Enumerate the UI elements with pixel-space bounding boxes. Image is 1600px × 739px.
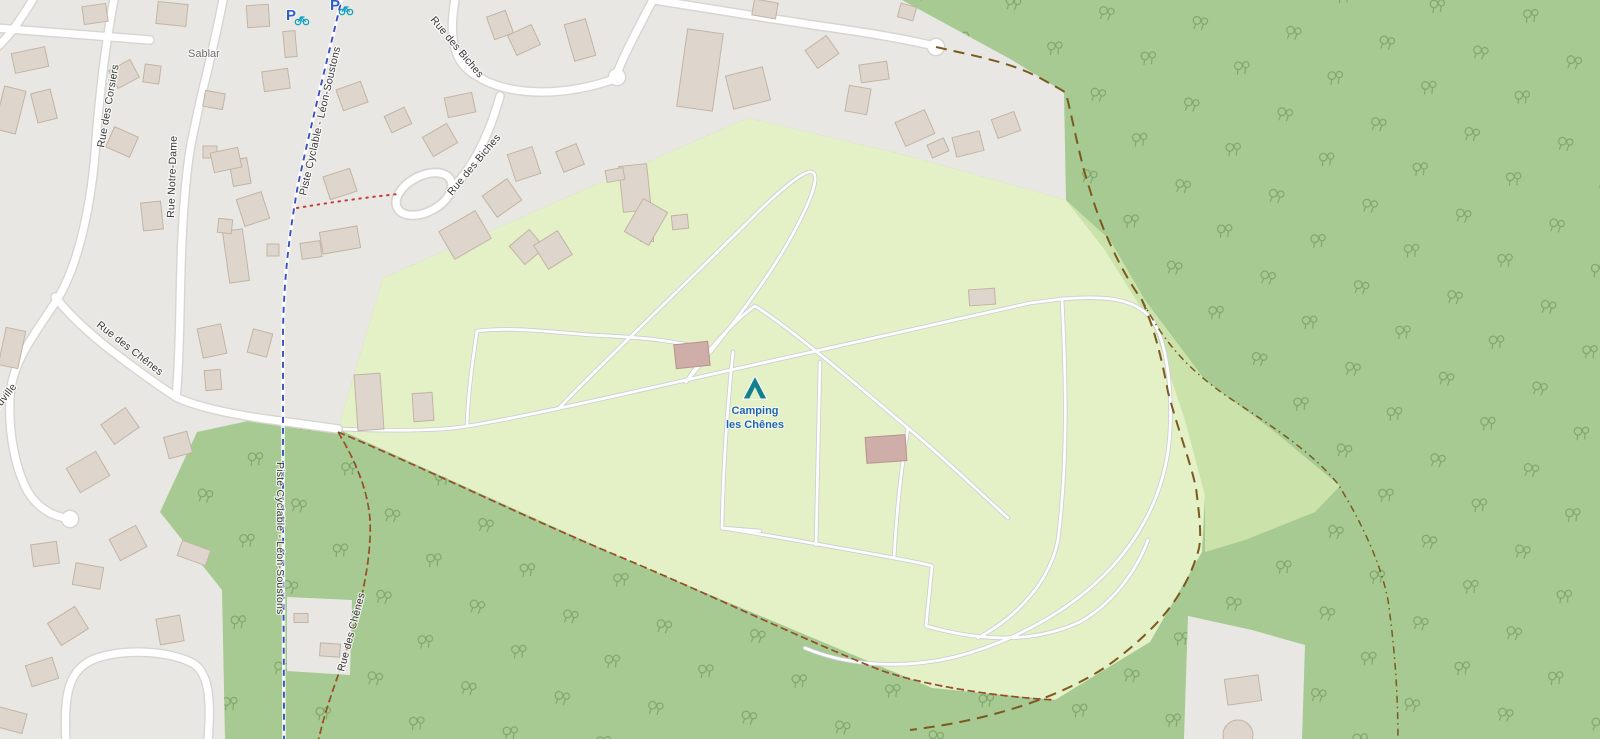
building [267,244,279,256]
building [300,241,322,260]
building [865,435,907,464]
building [320,643,341,657]
cycleway-label-south: Piste Cyclable - Léon-Soustons [274,462,286,615]
place-label-sablar: Sablar [188,48,220,60]
building [141,201,164,231]
svg-text:P: P [330,0,340,14]
building [283,31,297,58]
building [156,615,184,645]
osm-map[interactable]: P P Rue des Corsiers Rue Notre-Dame Sabl… [0,0,1600,739]
building [82,3,108,24]
building [674,341,710,368]
building [968,288,995,306]
building [354,373,384,431]
building [72,563,103,590]
building [845,85,871,114]
building [605,168,625,183]
building [204,369,222,390]
building [262,68,291,91]
building [31,541,60,566]
building [1224,675,1261,705]
svg-text:P: P [286,7,296,24]
building [217,218,232,233]
poi-label-campsite-line1: Camping [731,405,778,417]
building [859,61,889,83]
building [203,90,225,109]
map-canvas[interactable]: P P Rue des Corsiers Rue Notre-Dame Sabl… [0,0,1600,739]
poi-label-campsite-line2: les Chênes [726,419,784,431]
building [143,64,161,84]
building [412,392,434,421]
building [246,4,269,27]
building [156,1,188,26]
building [294,614,308,623]
building [671,214,688,230]
